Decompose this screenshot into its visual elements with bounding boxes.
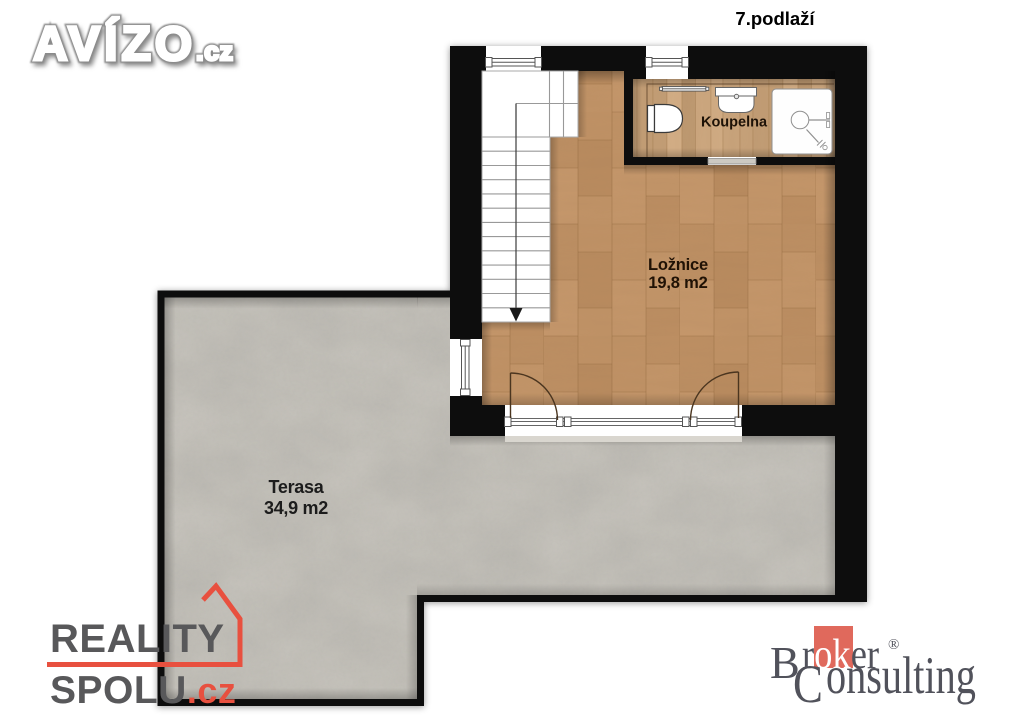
svg-text:C: C — [793, 654, 823, 714]
svg-text:onsulting: onsulting — [826, 647, 976, 706]
